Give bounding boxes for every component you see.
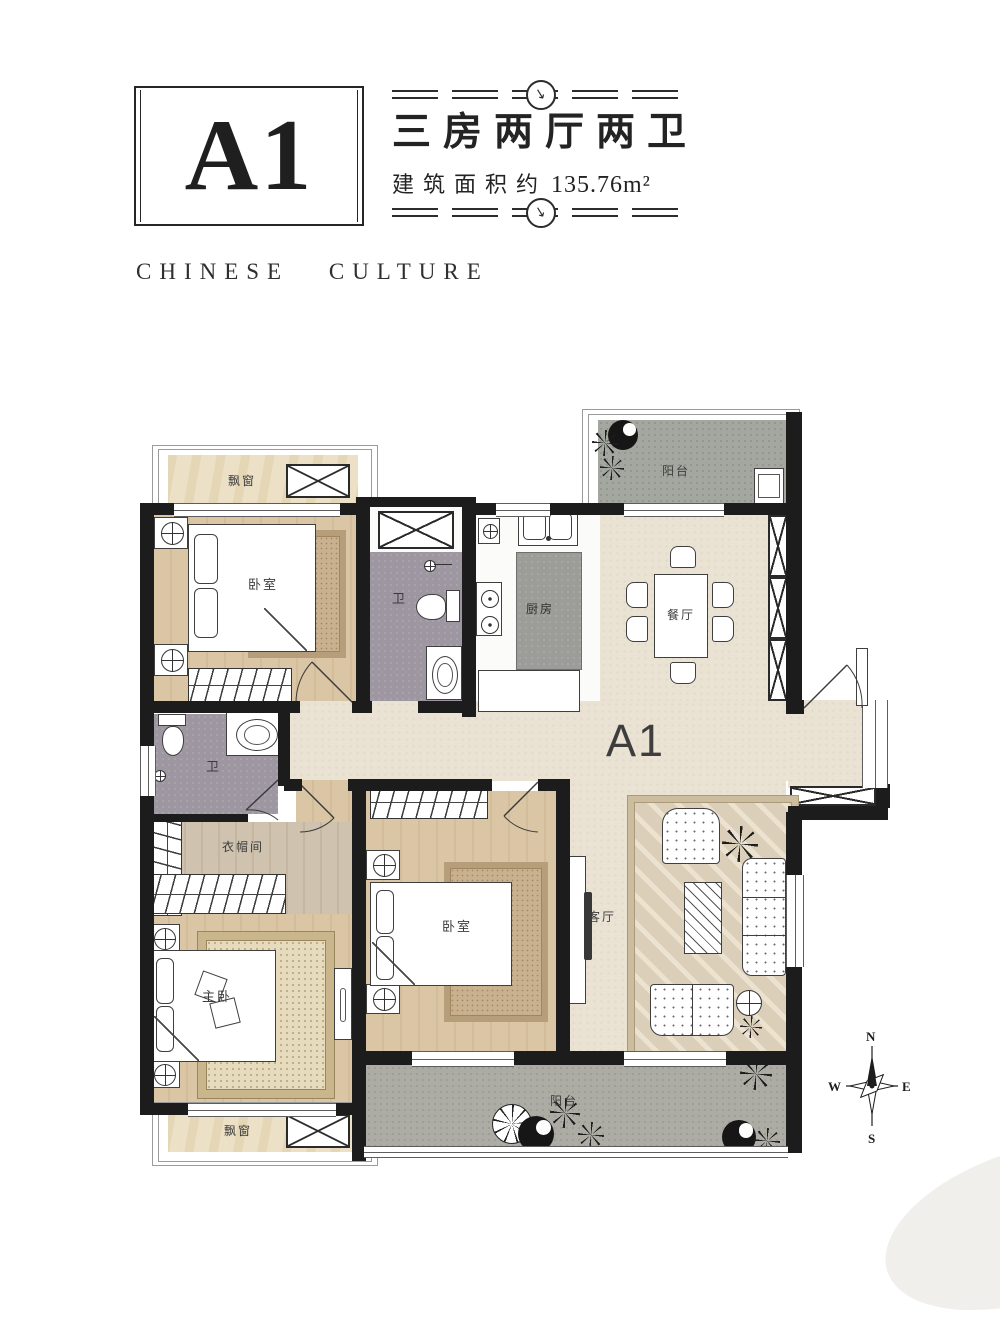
wall-segment [336, 1103, 358, 1115]
wall-segment [786, 412, 802, 505]
sofa-two-seat [650, 984, 734, 1036]
wall-segment [356, 503, 370, 713]
compass-north: N [866, 1030, 875, 1043]
room-label-master: 主卧 [202, 986, 232, 1005]
window [188, 1103, 336, 1117]
dining-chair [712, 616, 734, 642]
coffee-table [684, 882, 722, 954]
area-value: 135.76m² [551, 172, 651, 198]
heater-dial-icon [483, 524, 498, 539]
wall-segment [140, 701, 300, 713]
wall-segment [726, 1051, 788, 1065]
screen-panel-x [768, 515, 788, 577]
lamp-icon [161, 522, 184, 545]
screen-panel-x [768, 639, 788, 701]
blanket-fold [154, 1016, 199, 1061]
layout-title: 三房两厅两卫 [392, 110, 698, 157]
pillow [194, 534, 218, 584]
room-label-cloakroom: 衣帽间 [222, 838, 264, 855]
wall-segment [140, 503, 154, 1115]
lamp-icon [373, 854, 396, 877]
wall-segment [366, 779, 492, 791]
dining-chair [712, 582, 734, 608]
arrow-down-icon: ↓ [532, 203, 550, 223]
wall-segment [462, 497, 476, 717]
window [412, 1051, 514, 1067]
dining-chair [626, 616, 648, 642]
room-label-bath-left: 卫 [206, 756, 221, 775]
floorplan-page: { "header": { "unit_code": "A1", "layout… [0, 0, 1000, 1227]
sink-basin [549, 513, 572, 540]
wall-segment [556, 779, 570, 1063]
closet-x [378, 511, 454, 549]
bay-cabinet-x [286, 1114, 350, 1148]
door-swing-icon [800, 646, 870, 714]
plant-icon [592, 430, 618, 456]
pillow [376, 890, 394, 934]
balcony-rail [364, 1146, 788, 1158]
sink [432, 656, 458, 694]
screen-panel-x [768, 577, 788, 639]
room-label-living: 客厅 [588, 908, 616, 925]
wall-segment [140, 1103, 188, 1115]
room-label-balcony-top: 阳台 [662, 462, 690, 479]
wall-segment [788, 806, 888, 820]
plan-unit-label: A1 [606, 718, 665, 763]
divider-bottom: ↓ [392, 206, 690, 220]
room-label-dining: 餐厅 [667, 606, 695, 623]
arrow-down-icon: ↓ [532, 85, 550, 105]
room-label-bay-bottom: 飘窗 [224, 1122, 252, 1139]
burner-icon [481, 616, 499, 634]
window [140, 746, 156, 796]
dining-chair [670, 546, 696, 568]
lamp-icon [154, 928, 176, 950]
sliding-door [624, 503, 724, 517]
toilet-tank [446, 590, 460, 622]
wall-segment [418, 701, 476, 713]
wall-segment [724, 503, 786, 515]
tv [584, 892, 592, 960]
entry-floor [788, 714, 864, 788]
kitchen-cabinet [478, 670, 580, 712]
wall-segment [352, 701, 372, 713]
plant-icon [578, 1122, 604, 1148]
room-label-bay-top: 飘窗 [228, 472, 256, 489]
wall-segment [514, 1051, 570, 1065]
window [174, 503, 340, 517]
compass-south: S [868, 1132, 875, 1145]
hall-floor [284, 701, 788, 781]
compass-west: W [828, 1080, 841, 1093]
compass-icon [842, 1044, 902, 1128]
window [496, 503, 550, 517]
tagline: CHINESE CULTURE [136, 260, 489, 283]
wall-segment [366, 1051, 414, 1065]
wall-segment [140, 503, 174, 515]
pillow [194, 588, 218, 638]
lamp-icon [373, 988, 396, 1011]
shower-arm [434, 564, 452, 565]
divider-top: ↓ [392, 88, 690, 102]
side-table [736, 990, 762, 1016]
plant-icon [740, 1016, 762, 1038]
area-line: 建筑面积约 135.76m² [392, 167, 698, 199]
toilet-tank [158, 714, 186, 726]
room-label-bedroom-top: 卧室 [248, 574, 278, 593]
wall-segment [152, 814, 248, 822]
lamp-icon [161, 649, 184, 672]
plant-icon [722, 826, 758, 862]
corner-watermark [864, 1107, 1000, 1342]
dresser-handle [340, 988, 346, 1022]
wall-segment [600, 503, 624, 515]
room-label-bedroom-middle: 卧室 [442, 916, 472, 935]
unit-code-text: A1 [185, 105, 314, 207]
room-label-bath-top: 卫 [392, 588, 407, 607]
sink [236, 719, 278, 751]
wall-segment [786, 1051, 802, 1153]
door-swing-icon [296, 644, 356, 706]
plant-icon [600, 456, 624, 480]
shower-icon [424, 560, 436, 572]
compass-arrow-ornament: ↓ [526, 198, 556, 228]
sink-basin [523, 513, 546, 540]
sliding-door [624, 1051, 726, 1067]
armchair [662, 808, 720, 864]
wall-segment [356, 497, 476, 507]
dining-chair [626, 582, 648, 608]
toilet [416, 594, 446, 620]
faucet-icon [546, 536, 551, 541]
unit-code-box: A1 [134, 86, 364, 226]
blanket-fold [372, 942, 415, 985]
shoe-cabinet-x [790, 786, 876, 806]
compass-arrow-ornament: ↓ [526, 80, 556, 110]
window [786, 875, 804, 967]
room-label-kitchen: 厨房 [526, 600, 554, 617]
pillow [156, 958, 174, 1004]
compass-east: E [902, 1080, 911, 1093]
wardrobe-rack [150, 874, 286, 914]
dining-chair [670, 662, 696, 684]
ac-grille [758, 474, 780, 498]
wall-segment [278, 712, 290, 786]
wardrobe-rack [188, 668, 292, 702]
area-label: 建筑面积约 [392, 172, 547, 197]
bay-cabinet-x [286, 464, 350, 498]
door-swing-icon [296, 782, 352, 838]
lamp-icon [154, 1064, 176, 1086]
room-label-balcony-bottom: 阳台 [550, 1092, 578, 1109]
burner-icon [481, 590, 499, 608]
toilet [162, 726, 184, 756]
sofa-three-seat [742, 858, 786, 976]
